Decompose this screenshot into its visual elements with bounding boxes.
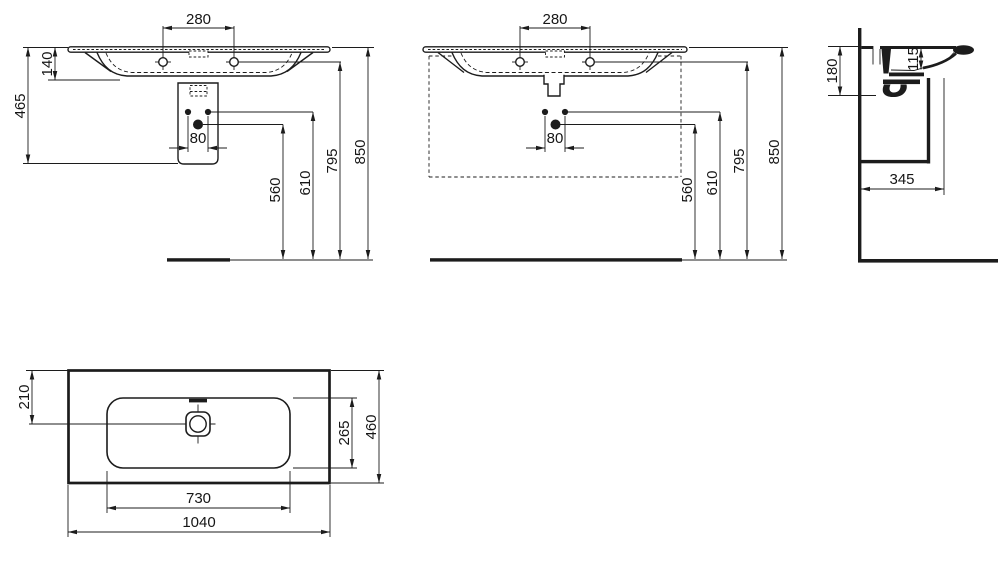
- dim-label-610: 610: [297, 170, 314, 195]
- dim-bowl-depth: 265: [293, 398, 357, 468]
- dim-bowl-depth: 115: [905, 47, 922, 71]
- dim-bowl-width: 730: [107, 471, 290, 513]
- waste-flange-cut: [889, 73, 924, 77]
- basin-deck-cut: [861, 46, 873, 49]
- overflow-slot-dashed: [189, 51, 208, 57]
- view-plan: 210 265 460 730 1040: [16, 371, 384, 538]
- dim-label-795: 795: [324, 148, 341, 173]
- dim-label-560: 560: [679, 177, 696, 202]
- waste-drain-symbol: [29, 405, 216, 444]
- dim-front-height: 180: [824, 47, 876, 96]
- dim-tap-spacing: 280: [520, 11, 590, 28]
- dim-label-80: 80: [190, 130, 207, 147]
- dim-label-280: 280: [186, 11, 211, 28]
- view-front-with-trap: 280 140 465 80 560: [12, 11, 374, 262]
- page: 280 140 465 80 560: [0, 0, 1000, 561]
- fixing-hole-dot: [205, 109, 211, 115]
- dim-overall-height: 465: [12, 48, 178, 164]
- fixing-hole-dot: [562, 109, 568, 115]
- dim-label-560: 560: [267, 177, 284, 202]
- dim-label-280: 280: [542, 11, 567, 28]
- furniture-bottom-line: [860, 160, 930, 163]
- dim-label-850: 850: [352, 139, 369, 164]
- waste-outlet-dot: [551, 120, 561, 130]
- fixing-hole-dot: [185, 109, 191, 115]
- dim-label-80: 80: [547, 130, 564, 147]
- back-wall-cut: [882, 49, 892, 74]
- dim-label-265: 265: [336, 420, 353, 445]
- view-front-with-furniture: 280 80 560 610 795 850: [423, 11, 788, 262]
- floor-line: [430, 258, 682, 261]
- dim-waste-height: 560: [267, 125, 284, 260]
- rim-bracket-right: [646, 53, 672, 73]
- wall-line: [858, 28, 861, 262]
- dim-label-210: 210: [16, 384, 33, 409]
- washbasin-technical-drawing: 280 140 465 80 560: [0, 0, 1000, 561]
- fixing-hole-dot: [542, 109, 548, 115]
- dim-label-465: 465: [12, 93, 29, 118]
- dim-label-730: 730: [186, 490, 211, 507]
- dim-label-795: 795: [731, 148, 748, 173]
- overflow-slot: [189, 399, 207, 403]
- dim-label-1040: 1040: [182, 514, 215, 531]
- dim-label-180: 180: [824, 58, 841, 83]
- dim-fixing-height: 610: [704, 112, 721, 259]
- dim-waste-from-front: 210: [16, 371, 72, 425]
- dim-tap-level: 795: [731, 62, 748, 259]
- dim-label-140: 140: [39, 51, 56, 76]
- rim-front-bullnose: [953, 45, 974, 54]
- view-side-section: 180 115 345: [824, 28, 998, 263]
- furniture-front-line: [927, 78, 930, 164]
- dim-label-850: 850: [766, 139, 783, 164]
- waste-flange-cut: [883, 80, 920, 85]
- furniture-outline-dashed: [429, 56, 681, 177]
- dim-label-460: 460: [363, 414, 380, 439]
- waste-outlet-dot: [193, 120, 203, 130]
- dim-waste-height: 560: [679, 125, 696, 260]
- dim-tap-spacing: 280: [163, 11, 234, 28]
- dim-label-610: 610: [704, 170, 721, 195]
- trap-hook-cut: [883, 85, 907, 98]
- rim-bracket-left: [438, 53, 464, 73]
- overflow-slot-dashed: [546, 51, 565, 57]
- waste-stub: [544, 75, 564, 96]
- dim-tap-level: 795: [324, 62, 341, 259]
- dim-label-345: 345: [889, 171, 914, 188]
- dim-label-115: 115: [905, 47, 922, 71]
- dim-fixing-height: 610: [297, 112, 314, 259]
- floor-line: [858, 259, 998, 263]
- floor-line: [167, 258, 230, 261]
